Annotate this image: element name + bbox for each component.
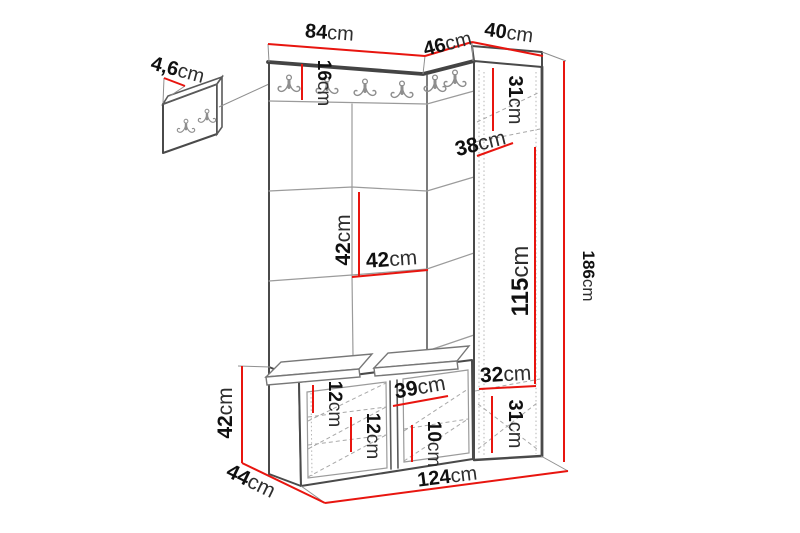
hook-rail bbox=[278, 70, 466, 97]
dim-31-bottom-label: 31cm bbox=[504, 400, 526, 449]
dim-12-upper-label: 12cm bbox=[324, 381, 345, 427]
rail-hook-4 bbox=[391, 81, 413, 97]
furniture-dimension-drawing: 84cm 46cm 40cm 4,6cm 16cm 31cm 38cm 42cm… bbox=[0, 0, 800, 533]
dim-10-label: 10cm bbox=[423, 421, 444, 467]
ext-84-46-corner bbox=[423, 56, 425, 74]
dim-42-wall-h-label: 42cm bbox=[365, 246, 418, 273]
dim-40-label: 40cm bbox=[483, 19, 535, 48]
bench-divider-edge-1 bbox=[390, 381, 391, 469]
dim-84-label: 84cm bbox=[304, 20, 354, 45]
panel-callout-line bbox=[219, 84, 269, 107]
dim-16-label: 16cm bbox=[313, 60, 334, 106]
small-hook-panel bbox=[163, 77, 269, 153]
ext-84-left bbox=[268, 44, 269, 62]
hook-rail-bottom-seam bbox=[269, 91, 474, 104]
dim-115-label: 115cm bbox=[507, 246, 534, 317]
dim-12-lower-label: 12cm bbox=[362, 413, 383, 459]
rail-hook-6 bbox=[444, 70, 466, 86]
rail-hook-1 bbox=[278, 75, 300, 91]
rail-hook-3 bbox=[354, 79, 376, 95]
ext-186-top bbox=[542, 52, 566, 61]
ext-4-6-left bbox=[163, 78, 164, 103]
panel-wall-section bbox=[268, 61, 474, 370]
wardrobe-bottom-edge bbox=[474, 456, 541, 460]
diagram-canvas: 84cm 46cm 40cm 4,6cm 16cm 31cm 38cm 42cm… bbox=[0, 0, 800, 533]
dim-84-line bbox=[268, 44, 425, 56]
dim-186-label: 186cm bbox=[579, 250, 598, 301]
dim-32-label: 32cm bbox=[479, 362, 531, 388]
dim-46-label: 46cm bbox=[421, 28, 474, 61]
dim-42-wall-v-label: 42cm bbox=[332, 214, 355, 265]
panel-row-seam-1 bbox=[269, 177, 474, 191]
wall-top-rail-edge bbox=[268, 61, 474, 74]
dim-38-label: 38cm bbox=[453, 126, 508, 161]
dim-42-bench-label: 42cm bbox=[214, 387, 237, 438]
dim-31-top-label: 31cm bbox=[504, 76, 526, 125]
